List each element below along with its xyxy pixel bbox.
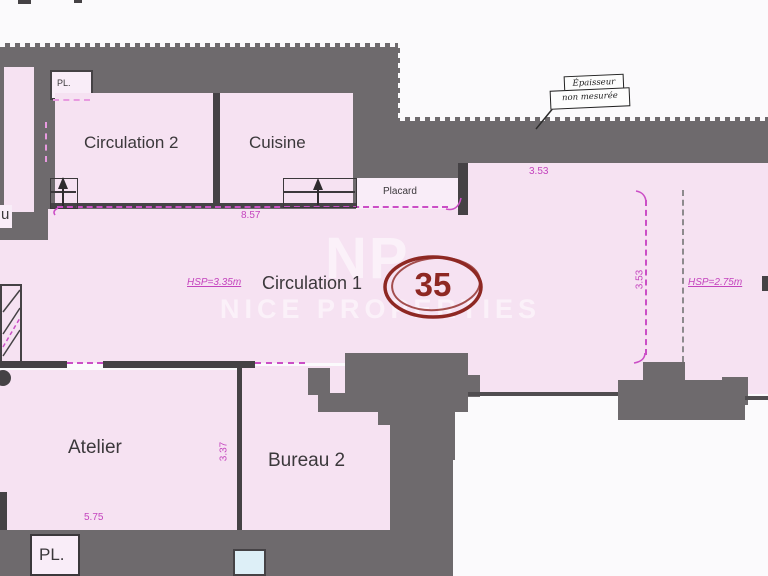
room-label-left-partial: u [1,206,9,223]
room-label-circulation-2: Circulation 2 [84,133,179,153]
swing-hook [446,198,461,210]
dim-3-37: 3.37 [219,432,230,472]
room-label-placard: Placard [383,186,417,197]
hsp-circulation-1: HSP=3.35m [187,277,241,288]
door-arrow-head [313,178,323,190]
dim-5-75: 5.75 [84,512,103,523]
door-arrow-head [58,177,68,189]
room-label-atelier: Atelier [68,437,122,459]
stamp-leader-line [536,107,554,129]
dim-3-53-mid: 3.53 [635,260,646,300]
stair-tread-line [3,290,20,312]
room-label-circulation-1: Circulation 1 [262,273,362,294]
dim-hook [634,353,645,363]
room-label-pl-top: PL. [57,78,71,88]
dim-8-57: 8.57 [241,210,260,221]
room-label-bureau-2: Bureau 2 [268,450,345,472]
stamp-line-2: non mesurée [550,87,631,109]
dim-3-53-top: 3.53 [529,166,548,177]
swing-hook [54,208,58,215]
room-label-pl-bottom: PL. [39,545,65,565]
room-label-cuisine: Cuisine [249,133,306,153]
line-art-overlay [0,0,768,576]
dim-hook [636,191,646,201]
lot-number: 35 [403,266,463,304]
floor-plan: NP NICE PROPERTIES Circulation 2 Cuisine… [0,0,768,576]
hsp-right-section: HSP=2.75m [688,277,742,288]
